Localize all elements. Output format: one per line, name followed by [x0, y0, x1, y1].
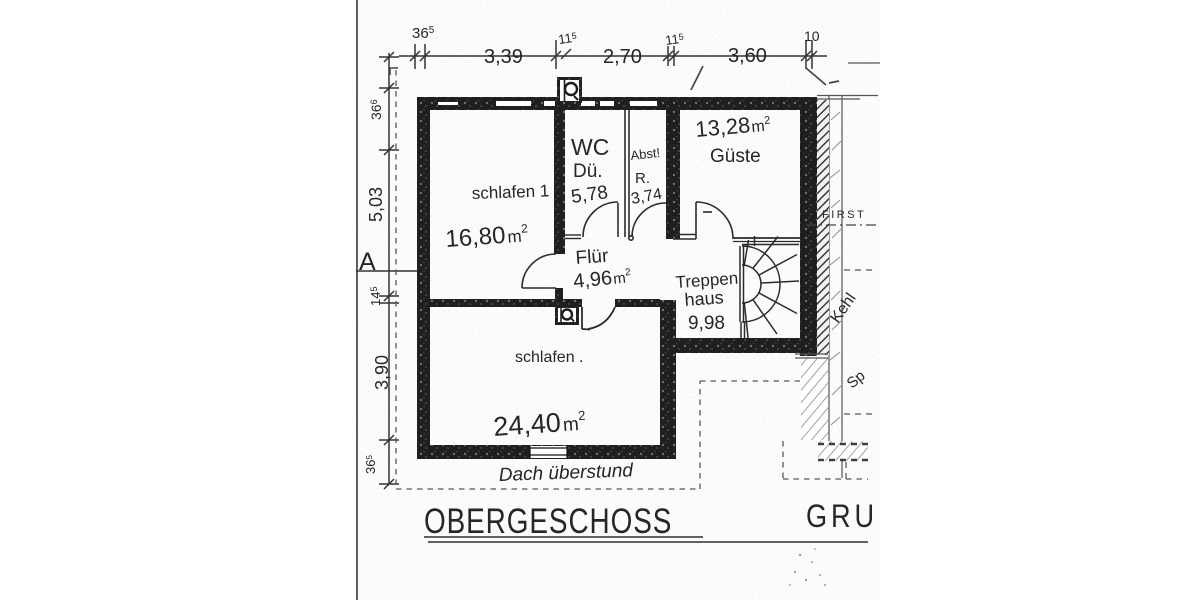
svg-text:WC: WC	[571, 134, 609, 160]
svg-text:haus: haus	[684, 287, 724, 310]
svg-text:3,90: 3,90	[372, 355, 392, 390]
svg-text:9,98: 9,98	[688, 313, 725, 334]
svg-text:Flür: Flür	[575, 246, 610, 269]
svg-text:3,60: 3,60	[728, 45, 767, 67]
svg-text:Abst!: Abst!	[630, 145, 661, 163]
svg-text:schlafen 1: schlafen 1	[471, 181, 549, 203]
svg-text:Güste: Güste	[710, 146, 761, 167]
svg-text:R.: R.	[635, 170, 650, 187]
svg-text:GRU: GRU	[806, 499, 878, 535]
svg-text:2,70: 2,70	[603, 46, 642, 68]
svg-text:schlafen .: schlafen .	[515, 349, 583, 366]
svg-text:5,03: 5,03	[366, 187, 386, 222]
svg-text:3,39: 3,39	[484, 46, 523, 68]
svg-text:Dü.: Dü.	[573, 161, 603, 182]
svg-text:OBERGESCHOSS: OBERGESCHOSS	[424, 501, 672, 541]
svg-text:10: 10	[804, 28, 820, 44]
svg-text:FIRST: FIRST	[822, 209, 866, 221]
